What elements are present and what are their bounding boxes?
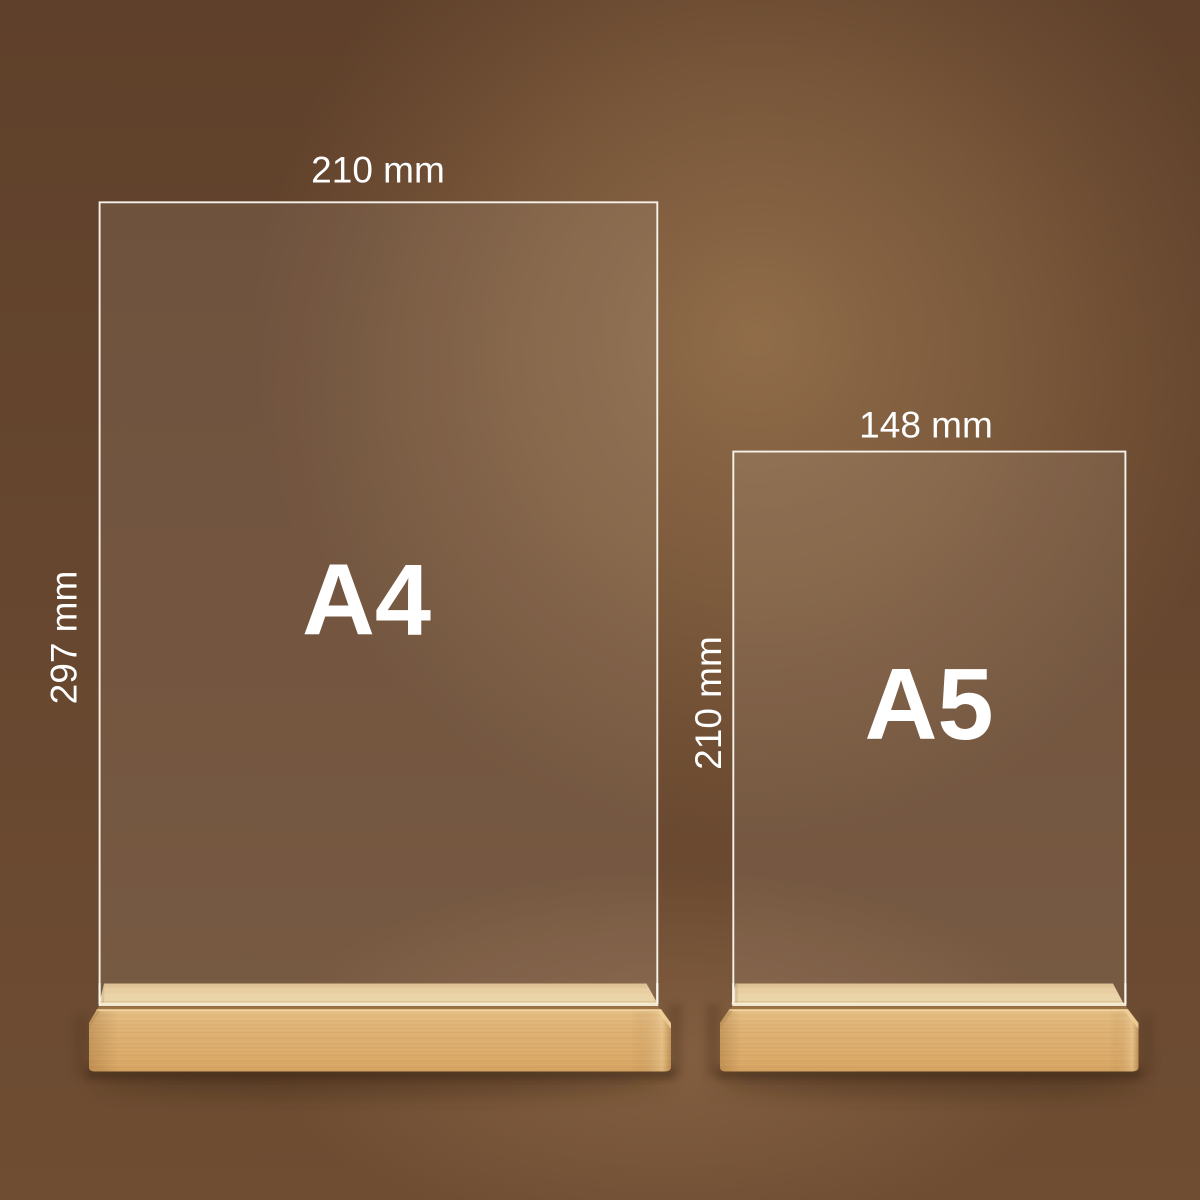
svg-text:148 mm: 148 mm [859, 405, 993, 446]
svg-text:210 mm: 210 mm [311, 150, 445, 191]
svg-text:210 mm: 210 mm [688, 636, 729, 770]
svg-text:297 mm: 297 mm [44, 571, 85, 705]
svg-text:A5: A5 [864, 649, 993, 761]
svg-text:A4: A4 [302, 545, 431, 657]
